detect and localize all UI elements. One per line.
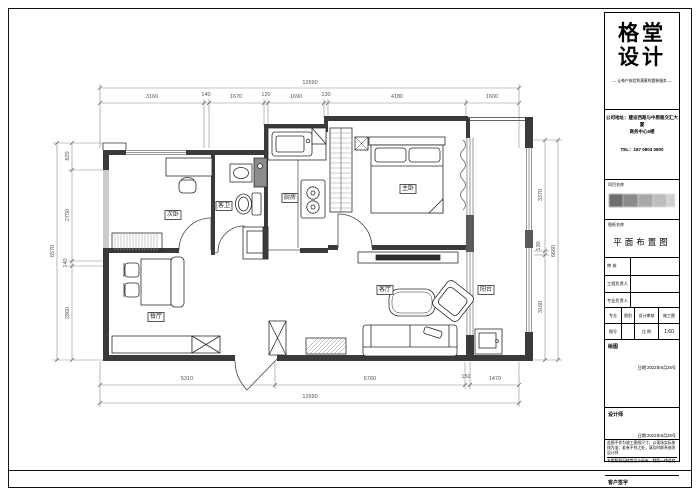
dim-label: 1470 bbox=[489, 376, 501, 382]
logo-tagline: — 让每户体验到满意的整装服务 — bbox=[607, 78, 677, 84]
coffee-table bbox=[389, 289, 435, 316]
room-label-kitchen: 厨房 bbox=[281, 193, 298, 203]
dining-chair bbox=[125, 283, 139, 297]
dim-label: 12690 bbox=[302, 80, 317, 86]
designer-section: 设计师 日期:2022年6月25号 bbox=[605, 407, 679, 441]
address-line-1: 公司地址：建设西路与中原路交汇大厦 bbox=[605, 114, 679, 128]
dim-label: 150 bbox=[461, 374, 470, 380]
approval-rows: 审 核 工程负责人 专业负责人 bbox=[605, 257, 679, 307]
draughtsman-date: 日期:2022年6月25号 bbox=[638, 365, 676, 371]
room-label-secondary-bedroom: 次卧 bbox=[164, 210, 181, 220]
dim-label: 2860 bbox=[65, 307, 71, 319]
notes-section: 此图不作为竣工图纸尺寸，以现场实际放线为准；若有不符之处，请及时联系修改设计师 … bbox=[605, 439, 679, 463]
shaft-column bbox=[269, 321, 286, 355]
sideboard bbox=[112, 336, 192, 353]
desk bbox=[166, 158, 212, 176]
room-label-balcony: 阳台 bbox=[477, 285, 494, 295]
dim-label: 120 bbox=[261, 92, 270, 98]
dim-label: 820 bbox=[65, 151, 71, 160]
dining-chair bbox=[125, 263, 139, 277]
draughtsman-section: 绘图 日期:2022年6月25号 bbox=[605, 339, 679, 373]
hall-cabinet-hatch bbox=[306, 338, 346, 354]
dim-label: 130 bbox=[321, 92, 330, 98]
balcony-cabinet bbox=[475, 329, 502, 354]
dim-label: 3160 bbox=[146, 94, 158, 100]
note-2: 本图版权归格堂设计所有，翻版一律追究 bbox=[607, 457, 677, 463]
crossed-cabinet bbox=[192, 336, 220, 353]
address-section: 公司地址：建设西路与中原路交汇大厦 商务中心5楼 TEL：187 0804 08… bbox=[605, 109, 679, 179]
toilet bbox=[236, 193, 262, 215]
note-1: 此图不作为竣工图纸尺寸，以现场实际放线为准；若有不符之处，请及时联系修改设计师 bbox=[607, 441, 677, 456]
grid-scale-value: 1:60 bbox=[659, 324, 679, 339]
grid-major: 专业 bbox=[605, 308, 622, 324]
wardrobe bbox=[330, 128, 352, 212]
designer-label: 设计师 bbox=[608, 411, 623, 418]
dim-label: 4180 bbox=[391, 94, 403, 100]
doors bbox=[179, 214, 372, 390]
title-block: 格堂 设计 — 让每户体验到满意的整装服务 — 公司地址：建设西路与中原路交汇大… bbox=[604, 12, 680, 462]
drawing-title: 平面布置图 bbox=[605, 236, 679, 248]
furniture bbox=[112, 128, 502, 356]
room-label-master-bedroom: 主卧 bbox=[399, 184, 416, 194]
grid-no-label: 图号 bbox=[605, 324, 622, 339]
dim-label: 1670 bbox=[230, 94, 242, 100]
project-manager-row: 工程负责人 bbox=[605, 275, 679, 293]
dim-label: 2750 bbox=[65, 209, 71, 221]
dim-label: 140 bbox=[201, 92, 210, 98]
grid-type: 图别 bbox=[622, 308, 635, 324]
drawing-sheet: 12690 3160 140 1670 120 1690 130 4180 16… bbox=[0, 0, 700, 497]
dim-label: 12690 bbox=[302, 394, 317, 400]
phone-number: TEL：187 0804 0800 bbox=[605, 147, 679, 153]
floor-plan-svg bbox=[0, 0, 700, 497]
dim-label: 3370 bbox=[538, 189, 544, 201]
room-label-living: 客厅 bbox=[376, 285, 393, 295]
logo-section: 格堂 设计 — 让每户体验到满意的整装服务 — bbox=[605, 13, 679, 109]
grid-check: 设计审核 bbox=[635, 308, 659, 324]
grid-scale-label: 比 例 bbox=[635, 324, 659, 339]
desk-chair bbox=[179, 180, 196, 193]
dim-label: 3160 bbox=[538, 301, 544, 313]
project-name-label: 项目名称 bbox=[608, 182, 624, 188]
sofa bbox=[363, 325, 457, 356]
dim-label: 1690 bbox=[290, 94, 302, 100]
dim-label: 5760 bbox=[364, 376, 376, 382]
review-row: 审 核 bbox=[605, 258, 679, 275]
info-grid: 专业 图别 设计审核 施工图 图号 比 例 1:60 bbox=[605, 307, 679, 339]
master-bed bbox=[369, 137, 445, 213]
drawing-name-section: 图纸名称 平面布置图 bbox=[605, 219, 679, 257]
tv bbox=[376, 255, 440, 260]
dim-label: 140 bbox=[63, 258, 69, 267]
curtain-symbol bbox=[461, 140, 466, 210]
address-line-2: 商务中心5楼 bbox=[605, 128, 679, 135]
lead-row: 专业负责人 bbox=[605, 292, 679, 307]
room-label-bathroom: 客卫 bbox=[215, 201, 232, 211]
cooktop bbox=[298, 160, 325, 248]
client-signature-section: 客户签字 日期:2022年6月25号 bbox=[605, 475, 679, 497]
drawing-name-label: 图纸名称 bbox=[608, 222, 624, 228]
dim-label: 6570 bbox=[50, 245, 56, 257]
logo-line-1: 格堂 bbox=[605, 21, 679, 45]
room-label-dining: 餐厅 bbox=[147, 312, 164, 322]
shower-niche bbox=[254, 158, 267, 187]
dim-label: 6660 bbox=[551, 245, 557, 257]
project-manager-label: 工程负责人 bbox=[605, 276, 631, 293]
draughtsman-label: 绘图 bbox=[608, 343, 618, 350]
washing-machine bbox=[243, 227, 268, 259]
redacted-stamp bbox=[609, 192, 675, 210]
dining-table bbox=[141, 259, 171, 305]
dim-label: 130 bbox=[536, 241, 542, 250]
dining-bench bbox=[171, 257, 184, 307]
client-signature-label: 客户签字 bbox=[608, 479, 628, 486]
dim-label: 1600 bbox=[486, 94, 498, 100]
armchair bbox=[431, 279, 476, 324]
dim-label: 5310 bbox=[181, 376, 193, 382]
review-label: 审 核 bbox=[605, 258, 631, 275]
project-name-section: 项目名称 bbox=[605, 179, 679, 219]
logo-line-2: 设计 bbox=[605, 45, 679, 69]
grid-no-value bbox=[622, 324, 635, 339]
lead-label: 专业负责人 bbox=[605, 293, 631, 307]
grid-stage: 施工图 bbox=[659, 308, 679, 324]
